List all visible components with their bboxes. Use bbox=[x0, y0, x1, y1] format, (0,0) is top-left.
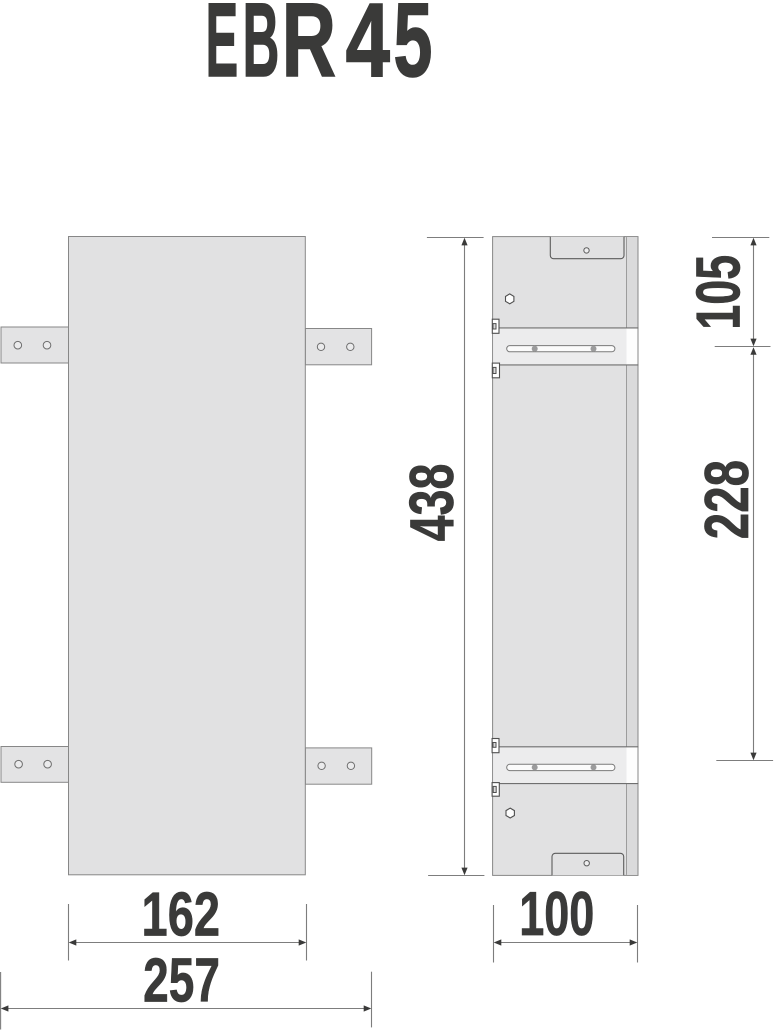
svg-text:4: 4 bbox=[346, 0, 390, 99]
svg-text:257: 257 bbox=[143, 947, 220, 1016]
svg-text:100: 100 bbox=[519, 880, 594, 949]
svg-text:105: 105 bbox=[684, 255, 753, 330]
svg-text:R: R bbox=[282, 0, 336, 99]
svg-text:438: 438 bbox=[398, 464, 467, 542]
svg-text:B: B bbox=[243, 0, 280, 99]
svg-text:162: 162 bbox=[142, 881, 220, 950]
svg-text:5: 5 bbox=[394, 0, 433, 99]
svg-text:228: 228 bbox=[693, 460, 762, 539]
svg-text:E: E bbox=[206, 0, 239, 99]
